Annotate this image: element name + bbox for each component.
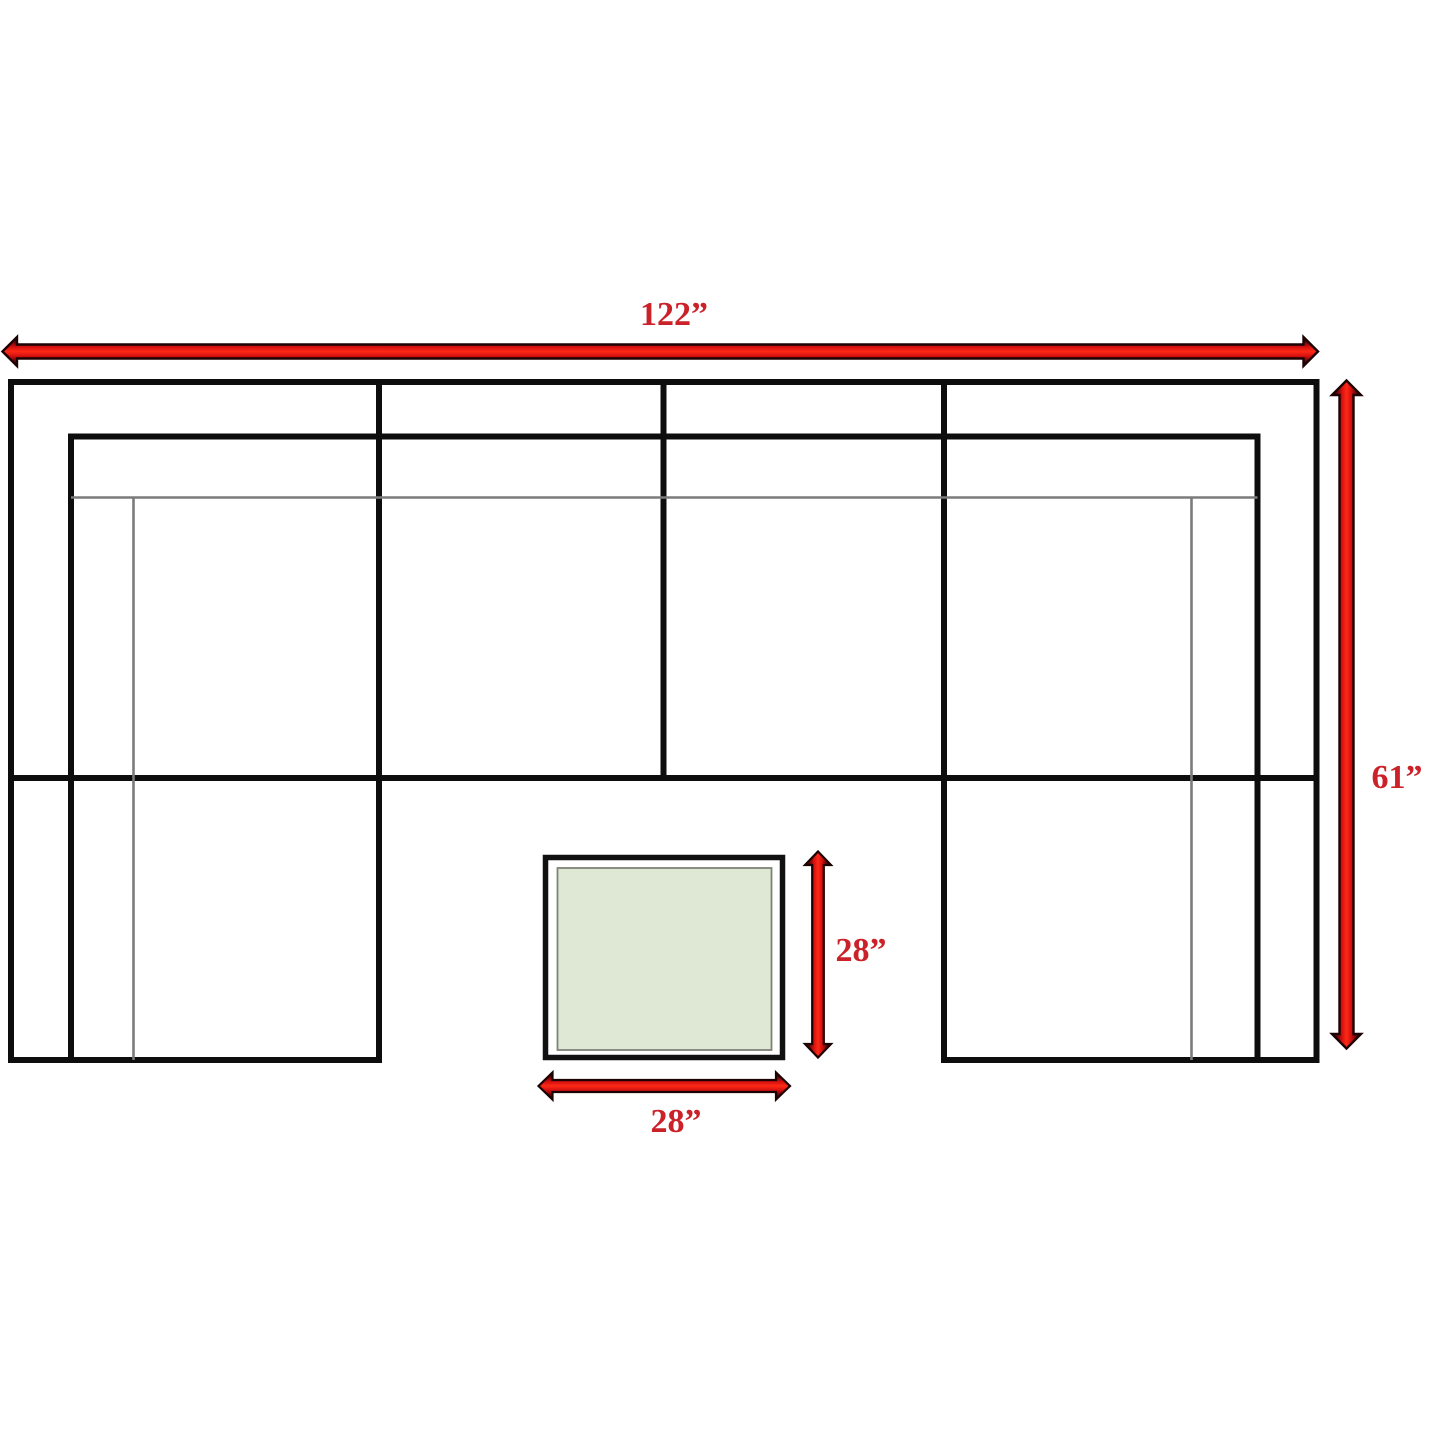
- svg-text:28”: 28”: [651, 1103, 702, 1140]
- svg-text:28”: 28”: [836, 932, 887, 969]
- svg-text:122”: 122”: [640, 296, 708, 333]
- svg-text:61”: 61”: [1372, 759, 1423, 796]
